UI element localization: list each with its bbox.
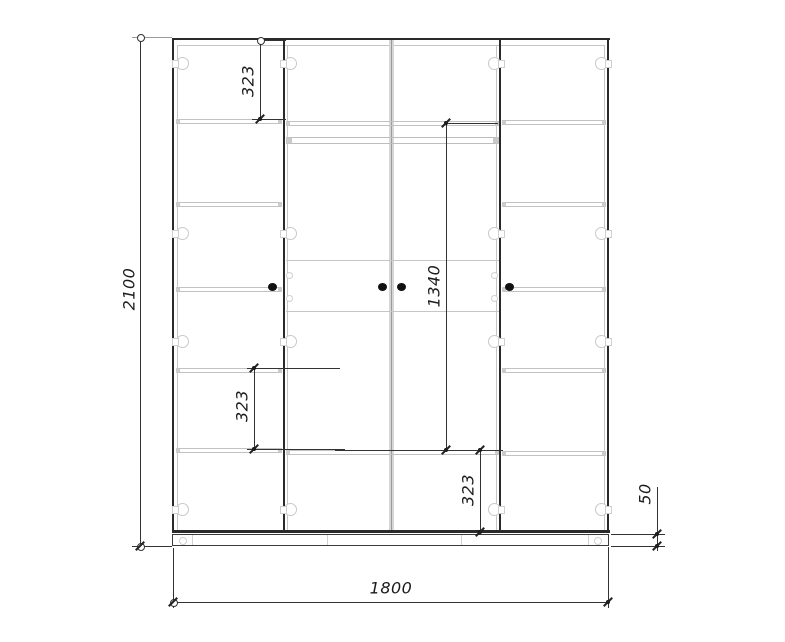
- hinge-icon: [488, 227, 501, 240]
- dim-label-overall-height: 2100: [120, 268, 139, 311]
- carcass-bottom-edge: [172, 530, 610, 533]
- shelf-pin-mark: [491, 295, 498, 302]
- shelf-line: [502, 120, 606, 125]
- dimension-line: [260, 40, 261, 119]
- hinge-icon: [176, 503, 189, 516]
- extension-line: [247, 368, 340, 369]
- middle-panel-line: [286, 311, 499, 312]
- plinth-joint-mark: [192, 535, 193, 545]
- plinth-joint-mark: [461, 535, 462, 545]
- extension-line: [446, 123, 498, 124]
- dim-node: [137, 34, 145, 42]
- door1-door2-gap-line: [283, 40, 285, 530]
- hinge-icon: [284, 503, 297, 516]
- door4-handle-knob: [505, 283, 514, 291]
- door2-edge-line: [287, 45, 288, 530]
- plinth-left-fitting-mark: [179, 537, 187, 545]
- dim-label-lower-left-shelf: 323: [233, 390, 252, 422]
- door1-handle-knob: [268, 283, 277, 291]
- plinth-joint-mark: [588, 535, 589, 545]
- hinge-icon: [284, 227, 297, 240]
- dim-node: [257, 37, 265, 45]
- shelf-line: [176, 202, 282, 207]
- shelf-pin-mark: [286, 272, 293, 279]
- wardrobe-technical-drawing: 2100 323 1340 323 3: [0, 0, 785, 642]
- shelf-line: [502, 287, 606, 292]
- middle-panel-line: [286, 260, 499, 261]
- dim-label-plinth-height: 50: [636, 483, 655, 504]
- shelf-line: [502, 202, 606, 207]
- hinge-icon: [595, 503, 608, 516]
- hinge-icon: [176, 335, 189, 348]
- door3-edge-line: [496, 45, 497, 530]
- dimension-line: [140, 37, 141, 546]
- plinth-joint-mark: [327, 535, 328, 545]
- door3-handle-knob: [397, 283, 406, 291]
- door2-door3-gap-line: [391, 40, 392, 530]
- shelf-line: [502, 451, 606, 456]
- hinge-icon: [284, 335, 297, 348]
- hanging-rod: [286, 137, 499, 144]
- dim-label-hanging-section: 1340: [425, 265, 444, 308]
- plinth-panel: [172, 534, 609, 546]
- dimension-line: [173, 602, 609, 603]
- door3-door4-gap-line: [499, 40, 501, 530]
- dimension-line: [446, 123, 447, 450]
- dim-label-top-shelf: 323: [239, 65, 258, 97]
- dimension-line: [254, 368, 255, 449]
- hinge-icon: [176, 227, 189, 240]
- shelf-line: [502, 368, 606, 373]
- hinge-icon: [488, 57, 501, 70]
- shelf-line: [176, 287, 282, 292]
- hinge-icon: [176, 57, 189, 70]
- shelf-pin-mark: [491, 272, 498, 279]
- hinge-icon: [488, 335, 501, 348]
- dim-label-overall-width: 1800: [370, 579, 413, 598]
- dimension-line: [480, 450, 481, 532]
- hinge-icon: [488, 503, 501, 516]
- door2-handle-knob: [378, 283, 387, 291]
- hinge-icon: [595, 227, 608, 240]
- dim-label-bottom-middle-shelf: 323: [459, 474, 478, 506]
- hinge-icon: [284, 57, 297, 70]
- extension-line: [247, 449, 345, 450]
- carcass-right-edge: [607, 38, 609, 533]
- dimension-line: [657, 487, 658, 551]
- shelf-pin-mark: [286, 295, 293, 302]
- hinge-icon: [595, 57, 608, 70]
- plinth-right-fitting-mark: [594, 537, 602, 545]
- hinge-icon: [595, 335, 608, 348]
- carcass-left-edge: [172, 38, 174, 533]
